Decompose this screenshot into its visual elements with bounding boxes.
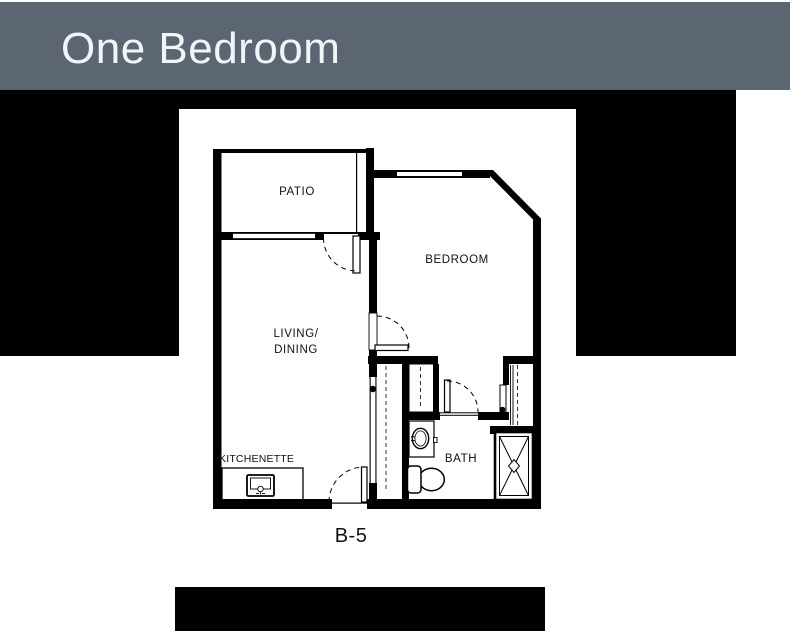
- room-label-patio: PATIO: [247, 186, 347, 198]
- bath-threshold-line-2: [440, 415, 478, 416]
- patio-door-header-line: [324, 232, 360, 234]
- closet-b-top-wall: [503, 356, 537, 364]
- patio-window-glass: [233, 234, 315, 238]
- patio-screen-line: [356, 153, 357, 232]
- closet-c-knob: [370, 386, 376, 392]
- bedroom-door-arc: [377, 316, 409, 348]
- entry-door-arc: [329, 467, 364, 502]
- room-label-bath: BATH: [411, 453, 511, 465]
- bath-door-arc: [447, 381, 478, 412]
- unit-label: B-5: [301, 525, 401, 548]
- bedroom-window-line-top: [397, 170, 462, 172]
- divider-wall-b: [315, 232, 324, 240]
- room-label-living-dining: LIVING/DINING: [246, 327, 346, 358]
- closet-b-west-wall: [503, 364, 509, 385]
- central-wall-lower: [369, 483, 377, 509]
- bath-north-wall-b: [478, 412, 509, 420]
- toilet-icon: [408, 466, 445, 493]
- closet-c-front-line-2: [375, 377, 376, 483]
- bedroom-door-leaf: [375, 345, 408, 351]
- central-wall-upper: [369, 232, 377, 313]
- bedroom-window-glass: [397, 172, 462, 176]
- room-label-kitchenette: KITCHENETTE: [219, 453, 379, 465]
- patio-right-wall: [366, 148, 374, 232]
- patio-door-leaf: [353, 236, 360, 273]
- closet-b-knob: [500, 407, 506, 413]
- vanity-handle-tick: [434, 438, 438, 443]
- closet-a-east-wall: [433, 364, 439, 412]
- entry-threshold-line: [332, 503, 367, 504]
- patio-window-line-bottom: [233, 238, 315, 240]
- page: One Bedroom: [0, 0, 800, 631]
- patio-door-arc: [324, 238, 357, 271]
- closet-a-box: [409, 364, 437, 412]
- closet-c-front-line-1: [370, 377, 371, 483]
- entry-door-leaf: [362, 467, 368, 502]
- kitchenette-fixtures: [222, 468, 303, 500]
- divider-wall-a: [213, 232, 233, 240]
- kitchen-sink-icon: [247, 475, 274, 496]
- bedroom-diagonal-wall: [484, 170, 541, 228]
- bedroom-top-wall-a: [374, 170, 397, 178]
- bath-north-wall-a: [402, 412, 440, 420]
- bath-door-leaf: [445, 380, 451, 412]
- room-label-bedroom: BEDROOM: [407, 254, 507, 266]
- living-label-line2: DINING: [274, 344, 318, 356]
- shower-icon: [495, 432, 533, 500]
- living-label-line1: LIVING/: [273, 328, 318, 340]
- bedroom-window-line-bottom: [397, 176, 462, 178]
- patio-window-line-top: [233, 232, 315, 234]
- patio-top-wall: [213, 149, 374, 153]
